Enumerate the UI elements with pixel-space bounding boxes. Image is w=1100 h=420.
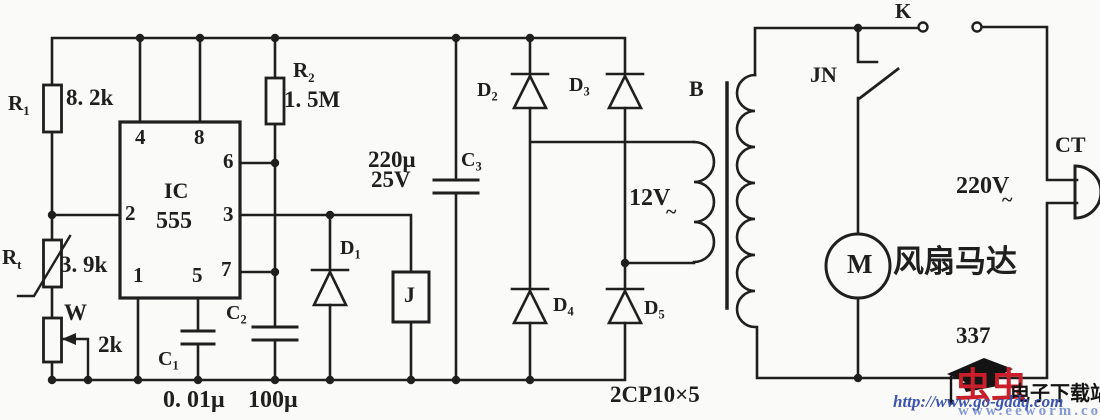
switch-k-icon	[919, 23, 982, 32]
label-c1: C1	[158, 349, 179, 369]
capacitor-c2-icon	[253, 327, 297, 340]
label-d2: D2	[477, 80, 498, 100]
ic-label: IC	[164, 180, 188, 202]
ac-tilde-secondary: ~	[666, 202, 676, 222]
label-r1: R1	[8, 93, 30, 114]
value-c2: 100μ	[248, 388, 298, 412]
label-d5: D5	[644, 298, 665, 318]
transformer-primary-winding	[737, 75, 755, 327]
motor-name: 风扇马达	[893, 246, 1017, 277]
label-transformer-b: B	[689, 78, 704, 100]
value-rt: 3. 9k	[60, 253, 107, 276]
value-c1: 0. 01μ	[163, 388, 225, 412]
resistor-r1-icon	[44, 85, 62, 132]
label-relay-coil-j: J	[404, 284, 415, 306]
capacitor-c3-icon	[434, 180, 478, 193]
schematic-page: R1 8. 2k Rt 3. 9k W 2k R2 1. 5M IC 555 4…	[0, 0, 1100, 420]
transformer-b-icon	[694, 75, 755, 327]
voltage-c3: 25V	[371, 168, 411, 191]
value-r2: 1. 5M	[284, 88, 340, 111]
diode-model: 2CP10×5	[610, 383, 700, 406]
ic-pin-8: 8	[194, 127, 205, 148]
label-relay-contact-jn: JN	[810, 64, 837, 86]
label-c3: C3	[461, 150, 482, 170]
label-d1: D1	[340, 238, 361, 258]
label-plug-ct: CT	[1055, 134, 1086, 156]
potentiometer-w-icon	[44, 318, 89, 380]
ic-pin-1: 1	[133, 265, 144, 286]
motor-symbol: M	[847, 251, 872, 278]
label-c2: C2	[226, 303, 247, 323]
ac-tilde-mains: ~	[1002, 190, 1012, 210]
diode-d2-icon	[512, 74, 548, 108]
ic-pin-3: 3	[223, 204, 234, 225]
wires-right-circuit	[755, 27, 1077, 378]
page-number: 337	[956, 324, 991, 347]
transformer-secondary-winding	[694, 142, 714, 262]
capacitor-c1-icon	[182, 331, 214, 344]
watermark-url-secondary: www.eeworm.com	[958, 404, 1100, 419]
value-w: 2k	[98, 333, 122, 356]
ic-pin-6: 6	[223, 151, 234, 172]
diode-d5-icon	[607, 289, 643, 323]
label-r2: R2	[293, 60, 315, 81]
label-secondary-voltage: 12V ~	[629, 186, 670, 210]
ic-pin-5: 5	[192, 265, 203, 286]
label-d3: D3	[569, 75, 590, 95]
ic-pin-4: 4	[135, 127, 146, 148]
ic-pin-7: 7	[221, 259, 232, 280]
diode-d3-icon	[607, 74, 643, 108]
label-mains-voltage: 220V ~	[956, 174, 1009, 198]
relay-contact-jn-icon	[860, 69, 898, 98]
ic-model: 555	[156, 209, 192, 233]
value-r1: 8. 2k	[66, 86, 113, 109]
label-switch-k: K	[895, 1, 911, 22]
ic-pin-2: 2	[125, 203, 136, 224]
label-w: W	[64, 301, 87, 324]
diode-d4-icon	[512, 289, 548, 323]
label-d4: D4	[553, 295, 574, 315]
resistor-r2-icon	[266, 78, 284, 124]
diode-d1-icon	[312, 270, 348, 305]
plug-ct-icon	[1075, 166, 1100, 218]
label-rt: Rt	[2, 247, 22, 268]
